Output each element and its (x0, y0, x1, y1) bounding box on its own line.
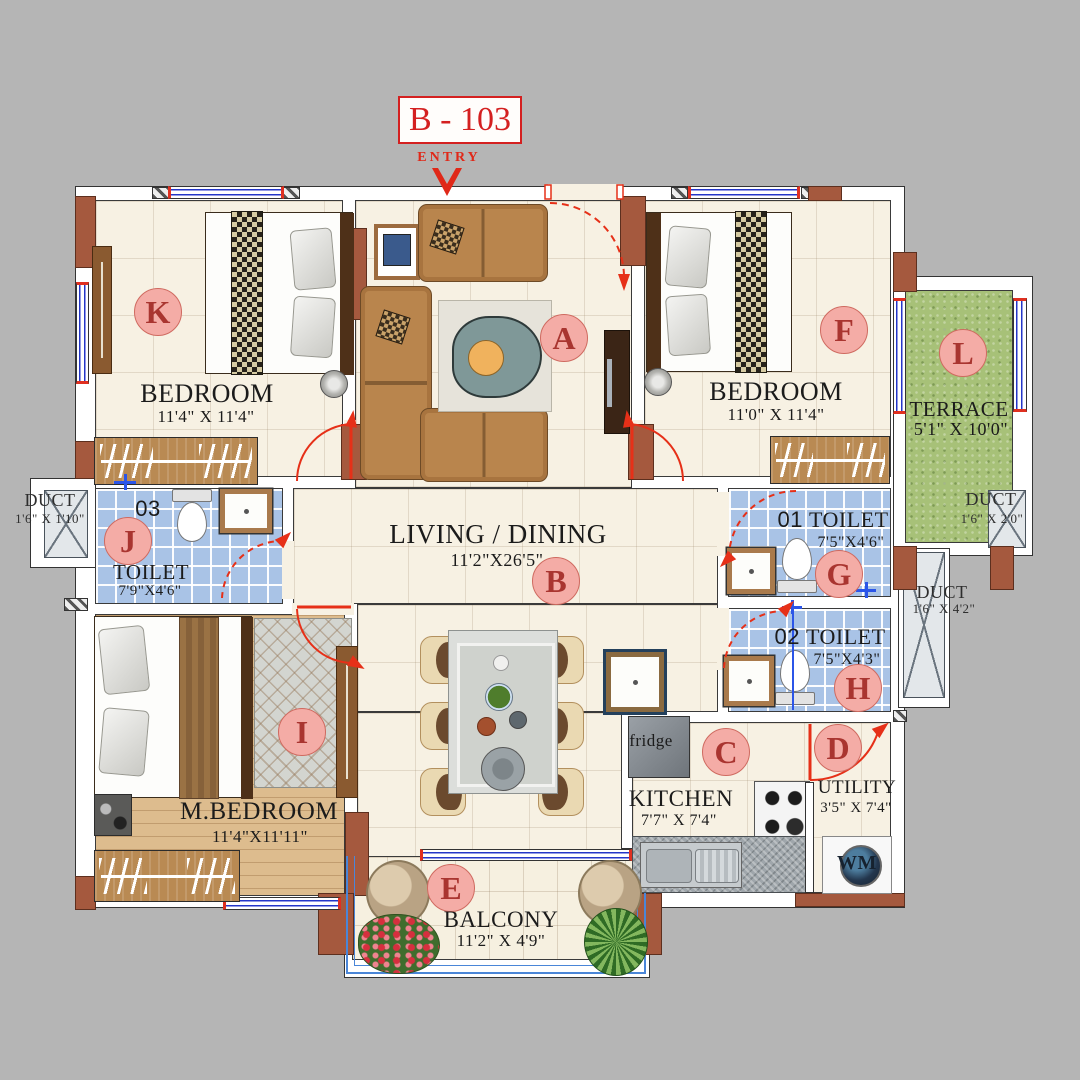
room-dims: 11'0" X 11'4" (727, 405, 824, 425)
room-dims: 11'4" X 11'4" (157, 407, 254, 427)
entry-door-opening (548, 184, 622, 200)
wash-basin (724, 656, 774, 706)
wm-label: WM (837, 852, 877, 875)
window (76, 282, 89, 384)
hanger-icon (199, 444, 252, 477)
toilet-bowl (177, 502, 207, 542)
hanger-icon (100, 444, 153, 477)
room-dims: 5'1" X 10'0" (914, 419, 1008, 440)
serving-plate (481, 747, 525, 791)
room-tag-c: C (702, 728, 750, 776)
hanger-icon (99, 858, 147, 894)
wardrobe (770, 436, 890, 484)
sink-tub (646, 849, 692, 883)
room-tag-h: H (834, 664, 882, 712)
bed (646, 212, 792, 372)
entry-arrow-notch (438, 168, 456, 184)
tray (468, 340, 504, 376)
toilet-name: TOILET (806, 624, 886, 649)
toilet-number: 01 (777, 507, 802, 532)
duct-name: DUCT (25, 490, 76, 511)
pillow (289, 227, 336, 290)
window (168, 186, 284, 199)
room-name: BEDROOM (140, 379, 274, 409)
room-name: M.BEDROOM (180, 798, 338, 826)
toilet-bowl (782, 538, 812, 580)
room-tag-g: G (815, 550, 863, 598)
wall (805, 782, 814, 893)
wall-hatch (893, 710, 907, 722)
wall-pillar (808, 186, 842, 201)
room-tag-k: K (134, 288, 182, 336)
duct-dims: 1'6" X 4'2" (913, 601, 976, 617)
wall-pillar (75, 876, 96, 910)
picture-shelf (374, 224, 420, 280)
window (893, 298, 906, 414)
floor-plan: K A F L J B G H I C D E BEDROOM 11'4" X … (0, 0, 1080, 1080)
dressing-table (94, 794, 132, 836)
room-tag-d: D (814, 724, 862, 772)
bed (94, 616, 252, 798)
room-name: BALCONY (444, 907, 559, 933)
room-dims: 7'5"X4'3" (814, 651, 881, 669)
toilet-01-door-opening (717, 492, 729, 556)
room-dims: 11'2" X 4'9" (457, 931, 546, 951)
bed (205, 212, 353, 374)
headboard (647, 213, 661, 373)
wall-hatch (152, 187, 169, 199)
wash-basin (220, 489, 272, 533)
plate (493, 655, 509, 671)
dining-table (448, 630, 558, 794)
unit-title-box: B - 103 (398, 96, 522, 144)
fridge-label: fridge (629, 731, 673, 751)
toilet-bowl (780, 650, 810, 692)
bedside-lamp (320, 370, 348, 398)
window (688, 186, 800, 199)
window (223, 897, 341, 910)
room-name: BEDROOM (709, 377, 843, 407)
kitchen-sink (640, 842, 742, 888)
room-name: 01 TOILET (777, 507, 888, 533)
wall-pillar (75, 441, 96, 479)
room-tag-j: J (104, 517, 152, 565)
hanger-icon (847, 443, 886, 476)
duct-dims: 1'6" X 1'10" (15, 511, 85, 527)
tv-unit (604, 330, 630, 434)
room-dims: 7'9"X4'6" (119, 583, 182, 600)
room-tag-a: A (540, 314, 588, 362)
toilet-number: 02 (774, 624, 799, 649)
room-dims: 11'4"X11'11" (212, 827, 308, 847)
room-tag-i: I (278, 708, 326, 756)
unit-number: B - 103 (409, 101, 511, 139)
blanket (179, 617, 219, 799)
window (1013, 298, 1027, 412)
room-name: LIVING / DINING (389, 519, 606, 550)
wall-pillar (620, 196, 646, 266)
salad-bowl (485, 683, 513, 711)
toilet-tank (777, 580, 817, 593)
toilet-number: 03 (135, 496, 160, 522)
pillow (98, 625, 151, 695)
wash-basin (606, 652, 664, 712)
wall-pillar (990, 546, 1014, 590)
headboard (340, 213, 354, 375)
duct-dims: 1'6" X 2'0" (961, 511, 1024, 527)
throw-pillow (429, 219, 464, 254)
sofa (418, 204, 548, 282)
room-name: 02 TOILET (774, 624, 885, 650)
room-dims: 7'5"X4'6" (818, 534, 885, 552)
pillow (98, 707, 150, 777)
bowl (477, 717, 496, 736)
shower-partition (792, 604, 794, 710)
wash-basin (727, 548, 775, 594)
pillow (290, 296, 336, 359)
wall-hatch (671, 187, 688, 199)
wall-pillar (893, 252, 917, 292)
room-name: KITCHEN (629, 786, 733, 812)
toilet-name: TOILET (809, 507, 889, 532)
pillow (664, 225, 711, 288)
bed-runner (231, 211, 263, 375)
throw-pillow (375, 309, 410, 344)
wall-pillar (893, 546, 917, 590)
bed-runner (735, 211, 767, 373)
picture (383, 234, 411, 266)
duct-name: DUCT (917, 582, 968, 603)
plate (509, 711, 527, 729)
room-tag-l: L (939, 329, 987, 377)
room-dims: 11'2"X26'5" (450, 550, 543, 571)
flower-pot (358, 914, 440, 974)
bedside-lamp (644, 368, 672, 396)
dresser (336, 646, 358, 798)
duct-name: DUCT (966, 489, 1017, 510)
dresser (92, 246, 112, 374)
potted-plant (584, 908, 648, 976)
wall-hatch (283, 187, 300, 199)
wall-pillar (795, 893, 905, 907)
hanger-icon (187, 858, 235, 894)
footboard (241, 617, 253, 799)
entry-label: ENTRY (417, 150, 481, 166)
sink-drainboard (695, 849, 739, 883)
toilet-tank (775, 692, 815, 705)
room-tag-e: E (427, 864, 475, 912)
master-bedroom-door-opening (292, 603, 354, 615)
shower-icon (114, 474, 136, 490)
room-dims: 3'5" X 7'4" (820, 800, 891, 817)
toilet-tank (172, 489, 212, 502)
sofa (420, 408, 548, 482)
room-dims: 7'7" X 7'4" (641, 812, 717, 830)
room-name: TOILET (113, 560, 189, 585)
room-tag-f: F (820, 306, 868, 354)
room-name: UTILITY (818, 777, 896, 799)
pillow (665, 294, 711, 357)
hanger-icon (775, 443, 814, 476)
toilet-03-door-opening (282, 541, 294, 599)
wardrobe (94, 850, 240, 902)
tv-screen (607, 359, 612, 407)
wall-pillar (628, 424, 654, 480)
wall-hatch (64, 598, 88, 611)
